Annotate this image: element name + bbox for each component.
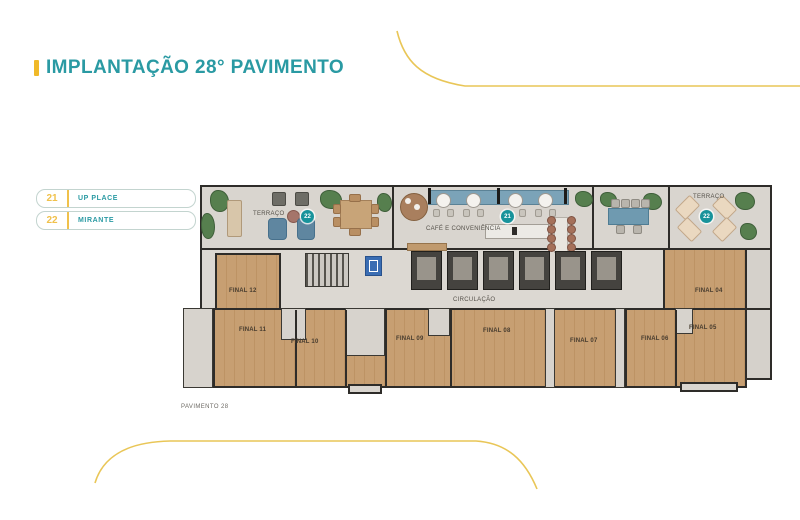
bar-table xyxy=(436,193,451,208)
chair xyxy=(611,199,620,208)
chair xyxy=(567,225,576,234)
unit-label: FINAL 05 xyxy=(689,325,717,331)
unit-final-12-floor xyxy=(215,253,281,310)
chair xyxy=(641,199,650,208)
service-area xyxy=(345,308,385,356)
legend: 21 UP PLACE 22 MIRANTE xyxy=(36,189,196,230)
decorative-curve-top xyxy=(397,31,800,86)
chair xyxy=(567,216,576,225)
unit-label: FINAL 06 xyxy=(641,336,669,342)
chair xyxy=(621,199,630,208)
wall xyxy=(345,310,347,388)
column xyxy=(497,188,500,204)
bench xyxy=(407,243,447,251)
chair xyxy=(567,234,576,243)
plant-icon xyxy=(740,223,757,240)
legend-label: MIRANTE xyxy=(78,217,114,224)
wall xyxy=(392,185,394,250)
area-label-circulation: CIRCULAÇÃO xyxy=(453,297,495,303)
dining-chair xyxy=(349,194,361,202)
unit-label: FINAL 09 xyxy=(396,336,424,342)
title-accent-bar xyxy=(34,60,39,76)
decorative-curve-bottom xyxy=(95,441,537,489)
bar-table xyxy=(508,193,523,208)
column xyxy=(428,188,431,204)
wall xyxy=(592,185,594,250)
apartments-band xyxy=(183,308,747,388)
legend-number: 22 xyxy=(37,215,67,226)
bar-table xyxy=(466,193,481,208)
balcony xyxy=(680,382,738,392)
elevator-shaft xyxy=(483,251,514,290)
wall xyxy=(675,310,677,388)
wall xyxy=(213,310,215,388)
unit-label: FINAL 12 xyxy=(229,288,257,294)
armchair xyxy=(272,192,286,206)
chair xyxy=(633,225,642,234)
elevator-sign-icon xyxy=(365,256,382,276)
legend-number: 21 xyxy=(37,193,67,204)
right-balcony-strip xyxy=(745,248,772,310)
floor-plan: TERRAÇO CAFÉ E CONVENIÊNCIA TERRAÇO CIRC… xyxy=(183,183,775,397)
dining-chair xyxy=(333,204,341,214)
elevator-shaft xyxy=(555,251,586,290)
wall xyxy=(450,310,452,388)
plate xyxy=(405,198,411,204)
elevator-shaft xyxy=(519,251,550,290)
service-area xyxy=(545,308,555,388)
plant-icon xyxy=(735,192,755,210)
dining-chair xyxy=(371,217,379,227)
chair xyxy=(547,234,556,243)
chair xyxy=(547,225,556,234)
area-label-terrace-right: TERRAÇO xyxy=(693,194,724,200)
wall xyxy=(295,310,297,388)
chair xyxy=(547,216,556,225)
plan-caption: PAVIMENTO 28 xyxy=(181,404,228,410)
dining-chair xyxy=(333,217,341,227)
wall xyxy=(625,310,627,388)
badge-mirante: 22 xyxy=(700,210,713,223)
service-area xyxy=(428,308,450,336)
dining-chair xyxy=(349,228,361,236)
area-label-terrace-left: TERRAÇO xyxy=(253,211,284,217)
lounge-chair xyxy=(268,218,287,240)
legend-divider xyxy=(67,212,69,229)
sink xyxy=(512,227,517,235)
service-area xyxy=(281,308,306,340)
unit-label: FINAL 08 xyxy=(483,328,511,334)
chair xyxy=(631,199,640,208)
legend-item-up-place: 21 UP PLACE xyxy=(36,189,196,208)
stool xyxy=(463,209,470,217)
legend-divider xyxy=(67,190,69,207)
chair xyxy=(616,225,625,234)
dining-chair xyxy=(371,204,379,214)
wall xyxy=(668,185,670,250)
elevator-shaft xyxy=(591,251,622,290)
armchair xyxy=(295,192,309,206)
stool xyxy=(477,209,484,217)
unit-label: FINAL 04 xyxy=(695,288,723,294)
plant-icon xyxy=(201,213,215,239)
bar-table xyxy=(538,193,553,208)
stool xyxy=(447,209,454,217)
plant-icon xyxy=(575,191,593,207)
page-title-text: IMPLANTAÇÃO 28° PAVIMENTO xyxy=(46,57,344,79)
plate xyxy=(414,204,420,210)
stool xyxy=(519,209,526,217)
stool xyxy=(433,209,440,217)
unit-label: FINAL 10 xyxy=(291,339,319,345)
unit-final-04-floor xyxy=(663,248,747,310)
stool xyxy=(535,209,542,217)
elevator-shaft xyxy=(411,251,442,290)
service-area xyxy=(615,308,625,388)
wall xyxy=(385,310,387,388)
unit-label: FINAL 11 xyxy=(239,327,266,333)
legend-item-mirante: 22 MIRANTE xyxy=(36,211,196,230)
sofa xyxy=(227,200,242,237)
slide: { "header": { "title": "IMPLANTAÇÃO 28° … xyxy=(0,0,800,520)
plant-icon xyxy=(377,193,392,212)
dining-table xyxy=(340,200,372,229)
unit-label: FINAL 07 xyxy=(570,338,598,344)
badge-up-place: 21 xyxy=(501,210,514,223)
lounge-table xyxy=(608,208,649,225)
staircase xyxy=(305,253,349,287)
service-area xyxy=(183,308,213,388)
badge-mirante: 22 xyxy=(301,210,314,223)
column xyxy=(564,188,567,204)
legend-label: UP PLACE xyxy=(78,195,118,202)
meeting-table xyxy=(554,217,568,253)
elevator-shaft xyxy=(447,251,478,290)
balcony xyxy=(348,384,382,394)
area-label-cafe: CAFÉ E CONVENIÊNCIA xyxy=(426,226,501,232)
page-title: IMPLANTAÇÃO 28° PAVIMENTO xyxy=(34,57,344,79)
right-balcony-strip xyxy=(745,308,772,380)
